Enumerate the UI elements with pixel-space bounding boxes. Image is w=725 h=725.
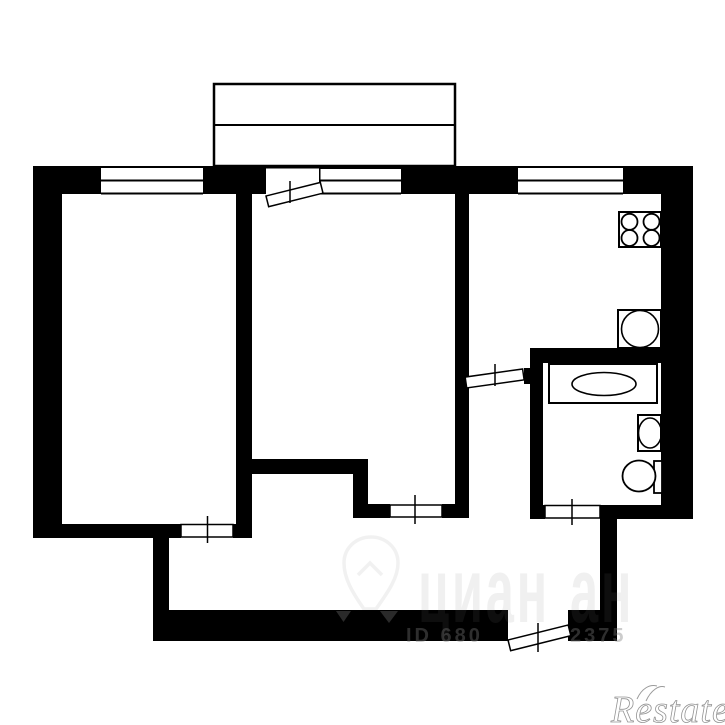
svg-text:ID 680: ID 680 (406, 625, 483, 647)
svg-text:2375: 2375 (570, 625, 627, 647)
svg-text:Restate: Restate (610, 689, 725, 725)
